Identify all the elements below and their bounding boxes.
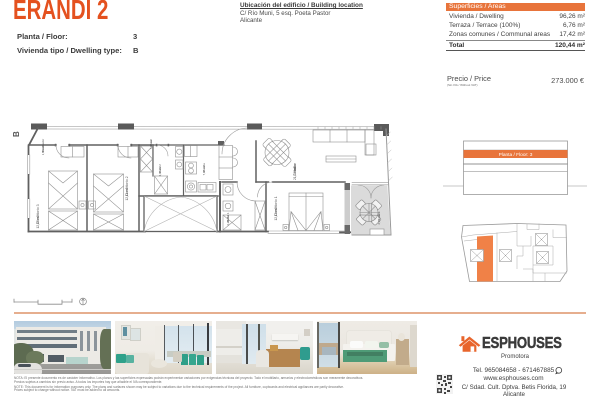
svg-text:3,46 m2: 3,46 m2 <box>158 166 162 177</box>
svg-text:21,72 m2: 21,72 m2 <box>293 166 297 180</box>
svg-text:Planta / Floor: 3: Planta / Floor: 3 <box>499 152 533 158</box>
svg-text:7,08 m2: 7,08 m2 <box>149 139 153 150</box>
svg-text:12,07 m2: 12,07 m2 <box>36 215 40 229</box>
svg-text:4,29 m2: 4,29 m2 <box>226 215 230 226</box>
svg-text:1,86 m2: 1,86 m2 <box>41 145 45 155</box>
svg-text:6,13 m2: 6,13 m2 <box>377 214 381 225</box>
svg-text:7,98 m2: 7,98 m2 <box>202 165 206 176</box>
svg-text:12,11 m2: 12,11 m2 <box>125 187 129 200</box>
svg-text:B: B <box>12 131 21 137</box>
svg-text:12,19 m2: 12,19 m2 <box>274 207 278 221</box>
